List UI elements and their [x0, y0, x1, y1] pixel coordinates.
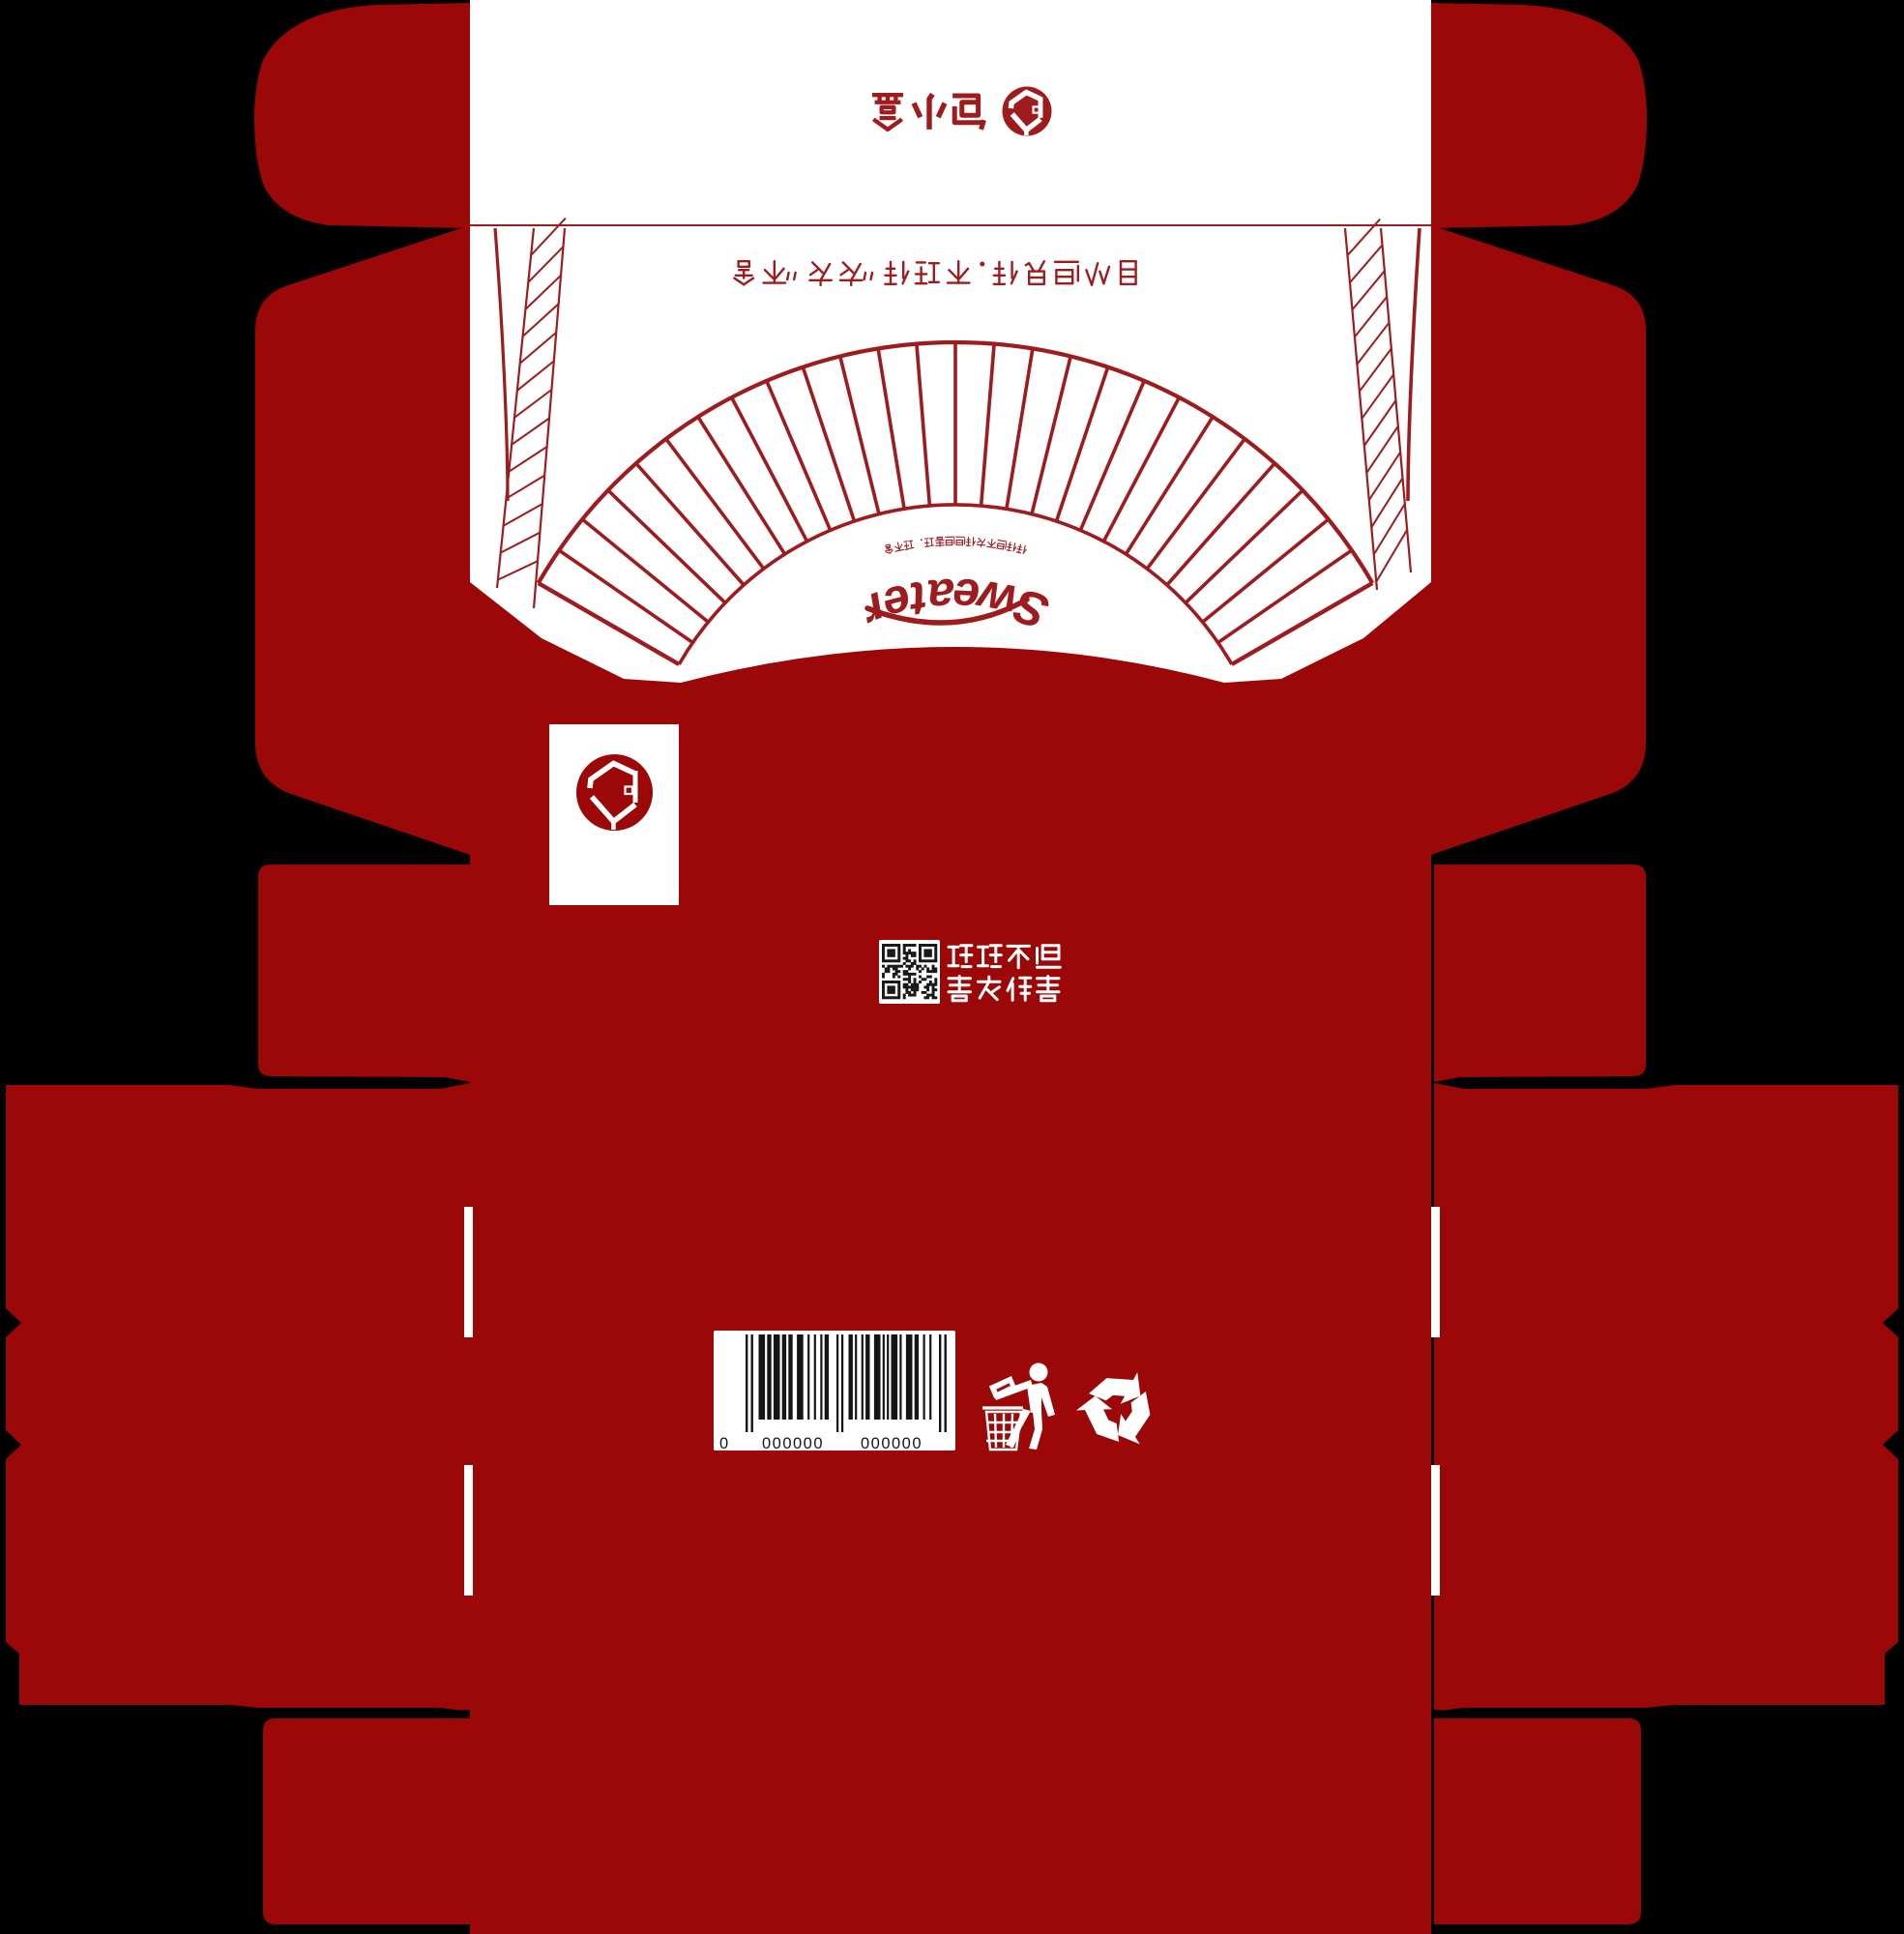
svg-text:000000: 000000 [762, 1435, 824, 1452]
svg-text:000000: 000000 [861, 1435, 923, 1452]
svg-text:0: 0 [719, 1435, 728, 1452]
